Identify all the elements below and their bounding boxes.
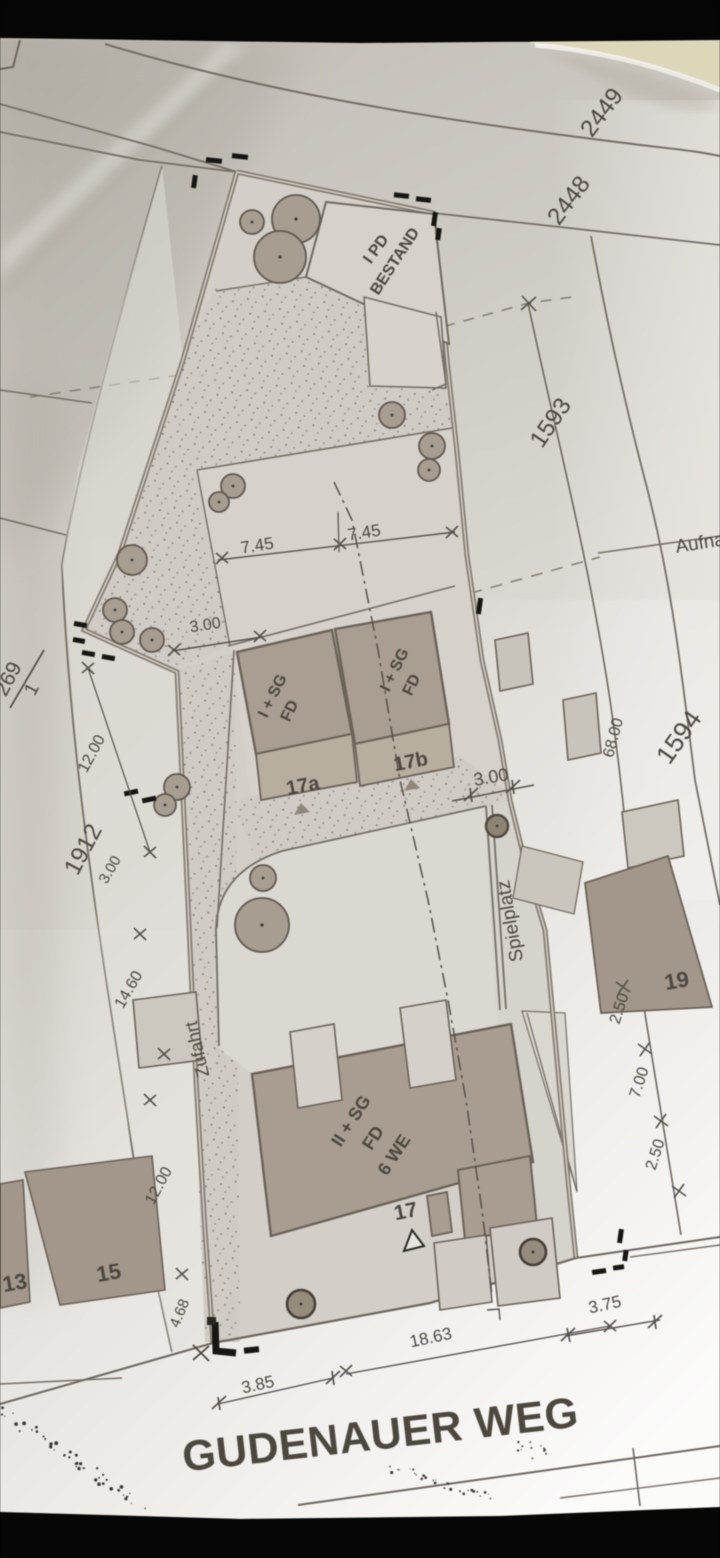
svg-text:19: 19 (662, 966, 690, 995)
svg-text:13: 13 (0, 1268, 28, 1297)
svg-text:15: 15 (94, 1258, 122, 1287)
svg-text:17: 17 (392, 1198, 419, 1225)
